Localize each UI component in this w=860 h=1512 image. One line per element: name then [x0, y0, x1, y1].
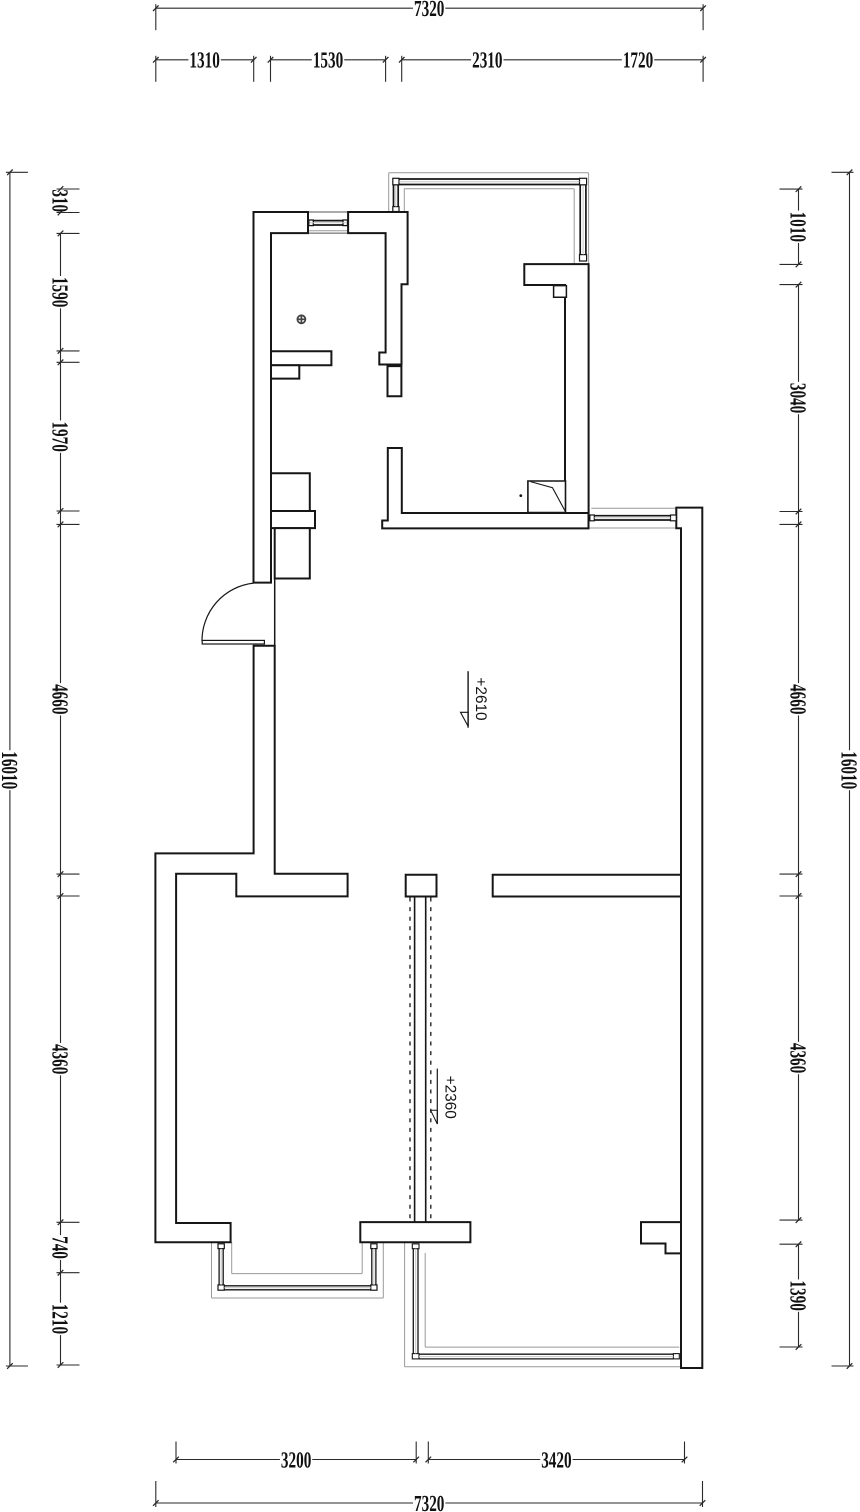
svg-text:1310: 1310 — [189, 48, 219, 73]
svg-text:16010: 16010 — [0, 751, 22, 789]
svg-text:7320: 7320 — [414, 1491, 444, 1512]
svg-text:1590: 1590 — [48, 277, 73, 307]
svg-text:4660: 4660 — [786, 684, 811, 714]
svg-text:3420: 3420 — [541, 1447, 571, 1472]
svg-text:4660: 4660 — [48, 684, 73, 714]
svg-text:4360: 4360 — [786, 1043, 811, 1073]
svg-text:740: 740 — [48, 1236, 73, 1259]
svg-text:1720: 1720 — [623, 48, 653, 73]
svg-text:1010: 1010 — [786, 212, 811, 242]
svg-text:16010: 16010 — [837, 751, 860, 789]
svg-text:7320: 7320 — [414, 0, 444, 21]
svg-text:310: 310 — [48, 189, 73, 212]
svg-text:1210: 1210 — [48, 1304, 73, 1334]
svg-text:1530: 1530 — [313, 48, 343, 73]
svg-text:+2610: +2610 — [472, 677, 489, 720]
svg-text:3040: 3040 — [786, 383, 811, 413]
svg-text:3200: 3200 — [281, 1447, 311, 1472]
svg-text:1390: 1390 — [786, 1280, 811, 1310]
svg-text:2310: 2310 — [472, 48, 502, 73]
svg-text:4360: 4360 — [48, 1044, 73, 1074]
svg-text:+2360: +2360 — [441, 1076, 458, 1119]
svg-text:1970: 1970 — [48, 421, 73, 451]
